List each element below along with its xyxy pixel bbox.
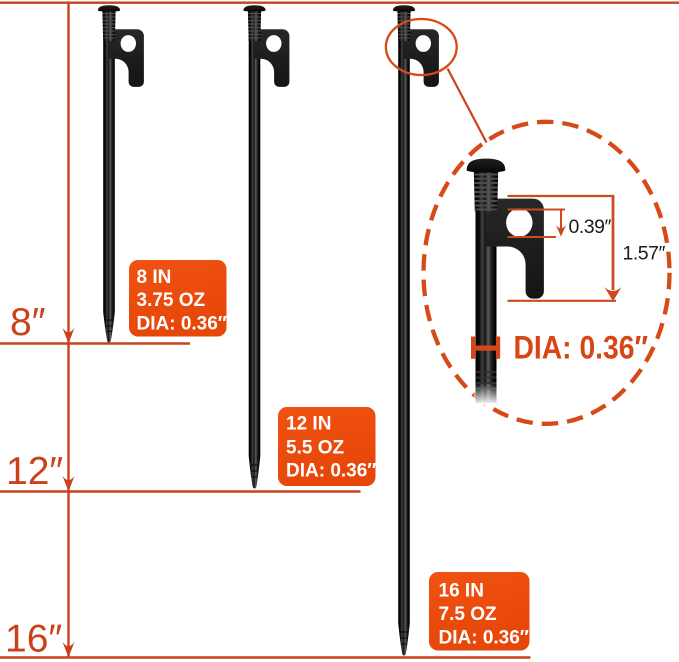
svg-text:7.5 OZ: 7.5 OZ [439,604,497,625]
svg-text:12″: 12″ [6,450,63,493]
svg-text:8″: 8″ [10,301,46,344]
svg-text:5.5 OZ: 5.5 OZ [286,437,344,458]
svg-text:1.57″: 1.57″ [623,243,666,265]
svg-text:3.75 OZ: 3.75 OZ [137,290,206,311]
svg-text:8 IN: 8 IN [137,267,172,288]
svg-text:0.39″: 0.39″ [569,216,612,238]
svg-text:DIA: 0.36″: DIA: 0.36″ [137,314,227,335]
svg-text:DIA: 0.36″: DIA: 0.36″ [286,461,376,482]
svg-text:DIA: 0.36″: DIA: 0.36″ [514,330,649,366]
svg-text:DIA: 0.36″: DIA: 0.36″ [439,628,529,649]
svg-text:12 IN: 12 IN [286,414,331,435]
svg-text:16 IN: 16 IN [439,581,484,602]
svg-text:16″: 16″ [5,618,62,661]
